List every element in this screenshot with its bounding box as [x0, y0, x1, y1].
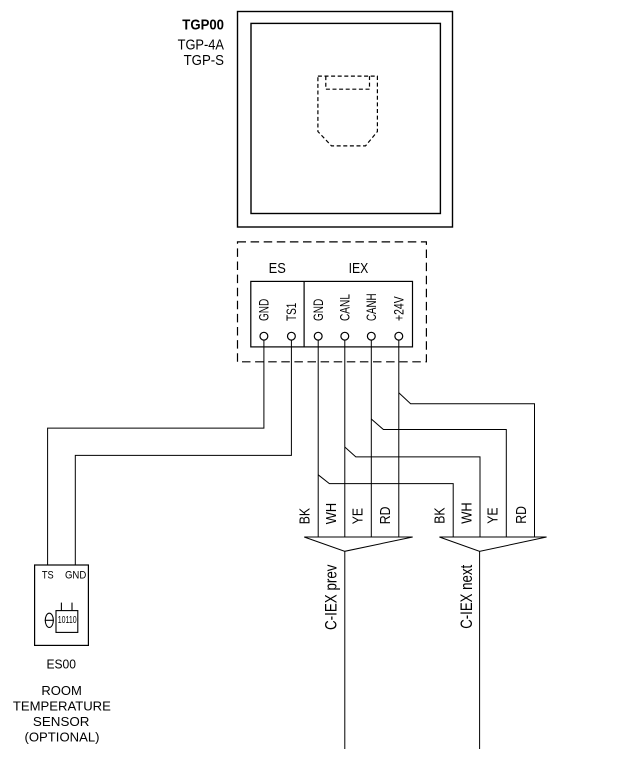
svg-text:GND: GND [310, 299, 326, 321]
svg-text:ES: ES [269, 260, 286, 277]
svg-text:RD: RD [514, 506, 530, 524]
svg-text:GND: GND [256, 299, 272, 321]
svg-text:CANH: CANH [363, 294, 379, 322]
svg-text:(OPTIONAL): (OPTIONAL) [25, 730, 100, 744]
svg-text:RD: RD [378, 507, 394, 525]
svg-text:C-IEX prev: C-IEX prev [321, 564, 340, 630]
svg-text:TGP00: TGP00 [182, 16, 224, 33]
svg-text:TGP-S: TGP-S [184, 52, 224, 69]
svg-text:C-IEX next: C-IEX next [457, 565, 476, 629]
svg-text:YE: YE [351, 508, 367, 525]
svg-text:TS1: TS1 [283, 303, 299, 321]
svg-text:TGP-4A: TGP-4A [178, 36, 224, 53]
svg-text:10110: 10110 [58, 615, 77, 626]
svg-text:GND: GND [65, 570, 87, 582]
svg-text:BK: BK [297, 508, 313, 525]
svg-text:ROOM: ROOM [41, 684, 82, 698]
svg-text:TEMPERATURE: TEMPERATURE [13, 700, 111, 714]
svg-text:WH: WH [324, 503, 340, 524]
svg-text:ES00: ES00 [46, 657, 76, 671]
svg-text:BK: BK [433, 507, 449, 524]
svg-text:+24V: +24V [390, 296, 406, 321]
svg-text:TS: TS [42, 570, 54, 582]
svg-text:WH: WH [459, 502, 475, 523]
svg-text:CANL: CANL [337, 294, 353, 321]
svg-text:IEX: IEX [349, 260, 369, 277]
svg-text:SENSOR: SENSOR [33, 715, 90, 729]
svg-text:YE: YE [486, 507, 502, 524]
